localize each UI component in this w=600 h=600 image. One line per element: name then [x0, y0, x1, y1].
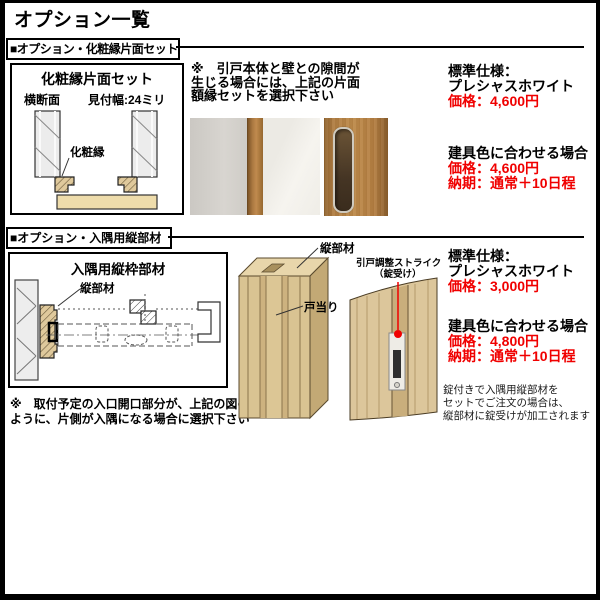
- corner-wall: [15, 280, 38, 380]
- corner-plan-drawing: [10, 276, 226, 382]
- custom-lead-time: 納期：通常＋10日程: [448, 349, 588, 364]
- jamb-with-strike: [350, 278, 437, 420]
- section1-divider-line: [176, 46, 584, 48]
- cross-section-drawing: [12, 109, 182, 213]
- edge-label-leader: [62, 158, 69, 176]
- note-line: 生じる場合には、上記の片面: [191, 76, 360, 90]
- section1-note: ※ 引戸本体と壁との隙間が 生じる場合には、上記の片面 額縁セットを選択下さい: [191, 62, 360, 103]
- note-line: セットでご注文の場合は、: [443, 397, 590, 410]
- note-line: ※ 引戸本体と壁との隙間が: [191, 62, 360, 76]
- page-border-right: [596, 0, 600, 600]
- standard-price: 価格：4,600円: [448, 94, 574, 109]
- member-label-leader: [58, 289, 80, 306]
- section2-standard-pricing: 標準仕様： プレシャスホワイト 価格：3,000円: [448, 249, 574, 294]
- strike-label-line2: （錠受け）: [374, 266, 422, 280]
- strike-pointer-dot: [394, 330, 402, 338]
- wood-post: [239, 258, 328, 418]
- page-border-left: [0, 0, 5, 600]
- opposite-jamb-piece: [58, 294, 200, 324]
- door-panel-dashed: [46, 324, 215, 346]
- wall-edge-photo: [190, 118, 320, 215]
- left-wall: [35, 111, 60, 177]
- note-line: 縦部材に錠受けが加工されます: [443, 410, 590, 423]
- grey-wall: [190, 118, 247, 215]
- recessed-door-handle: [333, 127, 354, 213]
- diagram2-title: 入隅用縦枠部材: [10, 258, 226, 278]
- white-wall: [263, 118, 320, 215]
- sliding-door-photo: [324, 118, 388, 216]
- section1-standard-pricing: 標準仕様： プレシャスホワイト 価格：4,600円: [448, 64, 574, 109]
- strike-screw: [395, 383, 400, 388]
- decorative-edge-block-left: [55, 177, 74, 192]
- custom-price: 価格：4,800円: [448, 334, 588, 349]
- section2-header: ■オプション・入隅用縦部材: [6, 227, 172, 249]
- note-line: 錠付きで入隅用縦部材を: [443, 384, 590, 397]
- custom-lead-time: 納期：通常＋10日程: [448, 176, 588, 191]
- custom-title: 建具色に合わせる場合: [448, 146, 588, 161]
- page-title: オプション一覧: [14, 5, 151, 32]
- cross-section-diagram-box: 化粧縁片面セット 横断面 見付幅:24ミリ 化粧縁: [10, 63, 184, 215]
- diagram1-title: 化粧縁片面セット: [12, 69, 182, 89]
- note-line: ※ 取付予定の入口開口部分が、上記の図の: [10, 397, 250, 412]
- custom-title: 建具色に合わせる場合: [448, 319, 588, 334]
- lock-option-note: 錠付きで入隅用縦部材を セットでご注文の場合は、 縦部材に錠受けが加工されます: [443, 384, 590, 423]
- member-3d-label: 縦部材: [320, 240, 355, 256]
- strike-slot: [393, 350, 401, 378]
- section2-custom-pricing: 建具色に合わせる場合 価格：4,800円 納期：通常＋10日程: [448, 319, 588, 364]
- section1-custom-pricing: 建具色に合わせる場合 価格：4,600円 納期：通常＋10日程: [448, 146, 588, 191]
- section1-header: ■オプション・化粧縁片面セット: [6, 38, 180, 60]
- note-line: 額縁セットを選択下さい: [191, 89, 360, 103]
- decorative-edge-block-right: [118, 177, 137, 192]
- right-frame-c-shape: [198, 302, 220, 342]
- width-label: 見付幅:24ミリ: [88, 91, 165, 108]
- page-border-bottom: [0, 594, 600, 600]
- section2-note: ※ 取付予定の入口開口部分が、上記の図の ように、片側が入隅になる場合に選択下さ…: [10, 397, 250, 427]
- options-sheet: オプション一覧 ■オプション・化粧縁片面セット 化粧縁片面セット 横断面 見付幅…: [0, 0, 600, 600]
- standard-spec-color: プレシャスホワイト: [448, 79, 574, 94]
- custom-price: 価格：4,600円: [448, 161, 588, 176]
- standard-spec-title: 標準仕様：: [448, 249, 574, 264]
- standard-spec-color: プレシャスホワイト: [448, 264, 574, 279]
- standard-spec-title: 標準仕様：: [448, 64, 574, 79]
- corner-plan-diagram-box: 入隅用縦枠部材 縦部材: [8, 252, 228, 388]
- standard-price: 価格：3,000円: [448, 279, 574, 294]
- door-panel: [57, 195, 157, 209]
- doorstop-label: 戸当り: [304, 299, 339, 315]
- cross-section-label: 横断面: [24, 91, 60, 108]
- note-line: ように、片側が入隅になる場合に選択下さい: [10, 412, 250, 427]
- right-wall: [132, 111, 157, 177]
- page-border-top: [0, 0, 600, 3]
- decorative-edge-strip: [247, 118, 264, 215]
